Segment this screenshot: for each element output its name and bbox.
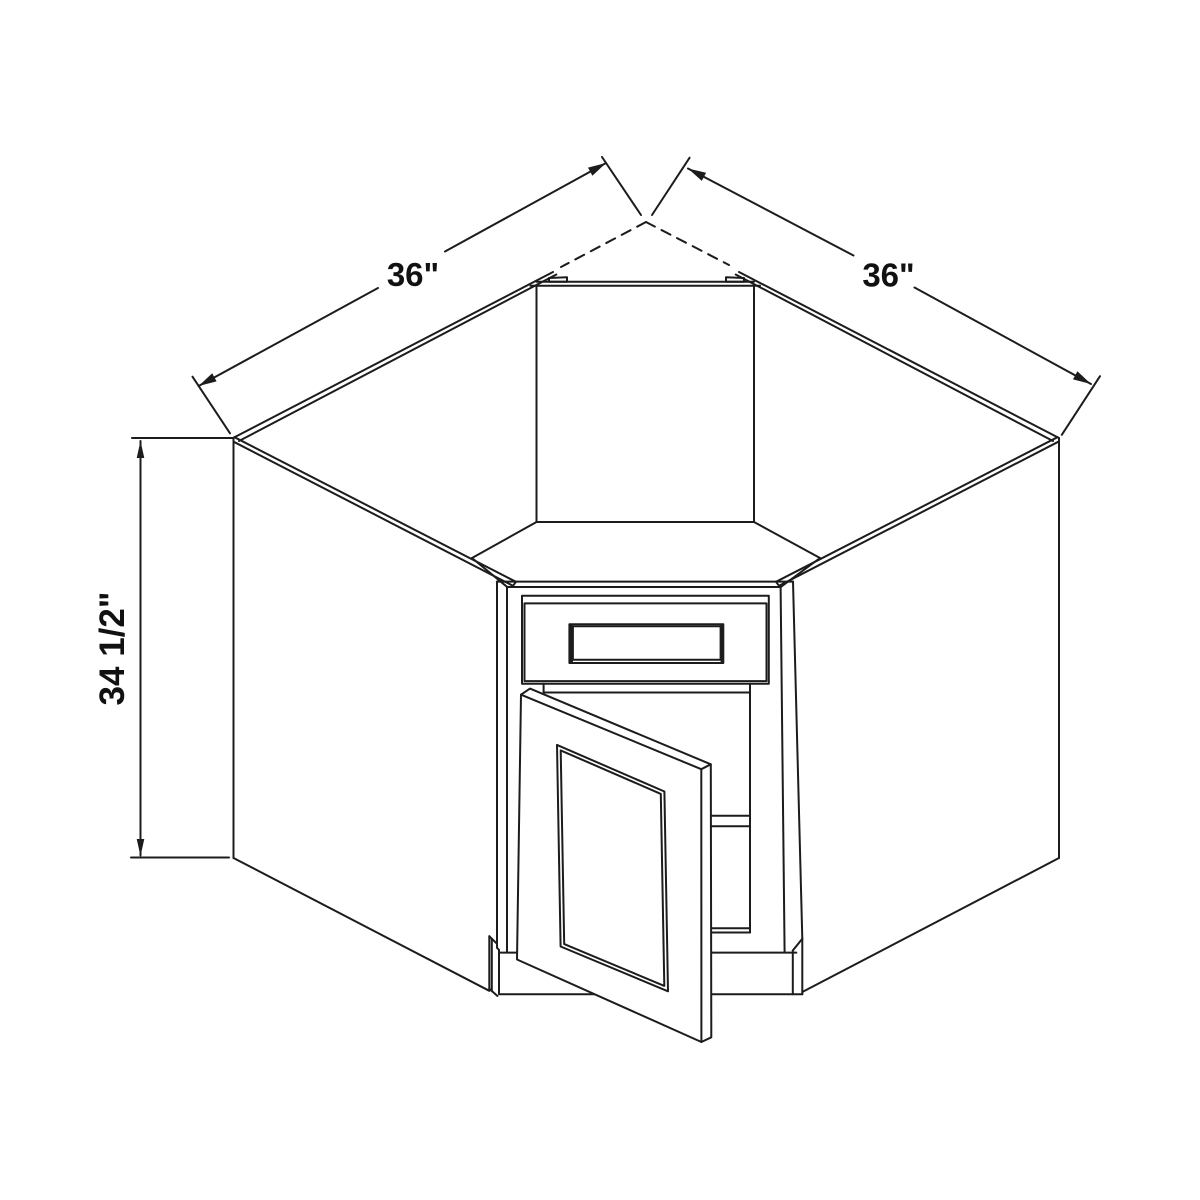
svg-text:36": 36" — [387, 256, 439, 293]
svg-text:36": 36" — [862, 257, 914, 294]
svg-text:34 1/2": 34 1/2" — [93, 592, 132, 706]
